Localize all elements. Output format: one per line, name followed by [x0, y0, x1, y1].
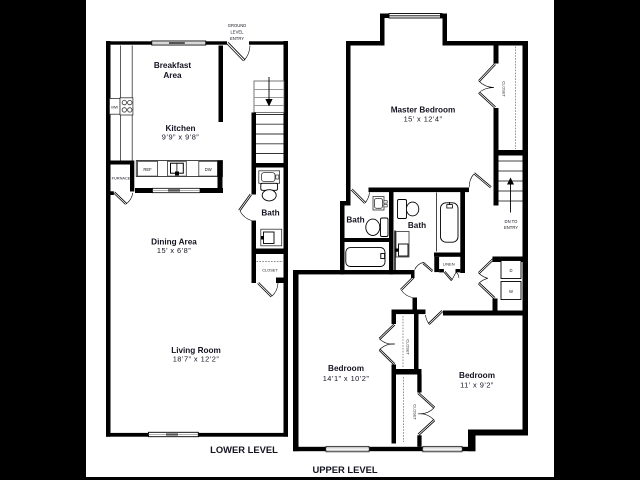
svg-text:15’ x 12’4”: 15’ x 12’4”	[404, 114, 443, 123]
svg-text:D: D	[509, 268, 512, 273]
svg-text:Breakfast: Breakfast	[154, 61, 192, 70]
svg-text:REF: REF	[143, 167, 152, 172]
svg-text:UPPER LEVEL: UPPER LEVEL	[312, 464, 377, 475]
svg-text:LOWER LEVEL: LOWER LEVEL	[210, 444, 278, 455]
svg-text:14’1” x 10’2”: 14’1” x 10’2”	[323, 374, 370, 383]
svg-text:Bath: Bath	[261, 208, 279, 217]
svg-text:18’7” x 12’2”: 18’7” x 12’2”	[173, 355, 220, 364]
svg-text:Bath: Bath	[408, 221, 426, 230]
svg-text:15’ x 6’8”: 15’ x 6’8”	[157, 246, 191, 255]
svg-text:CLOSET: CLOSET	[413, 404, 418, 420]
svg-text:Living Room: Living Room	[171, 346, 221, 355]
svg-text:CLOSET: CLOSET	[262, 267, 278, 272]
svg-text:MW: MW	[111, 105, 118, 109]
svg-text:W: W	[509, 289, 513, 294]
svg-text:Master Bedroom: Master Bedroom	[391, 105, 456, 114]
svg-text:LEVEL: LEVEL	[230, 29, 244, 34]
svg-text:Bedroom: Bedroom	[328, 364, 364, 373]
svg-text:CLOSET: CLOSET	[406, 339, 411, 355]
svg-text:Area: Area	[163, 71, 182, 80]
svg-text:Dining Area: Dining Area	[151, 237, 197, 246]
svg-text:9’9” x 9’8”: 9’9” x 9’8”	[162, 133, 199, 142]
svg-text:Bedroom: Bedroom	[459, 371, 495, 380]
svg-text:DN TO: DN TO	[505, 219, 519, 224]
svg-text:11’ x 9’2”: 11’ x 9’2”	[460, 381, 494, 390]
svg-text:DW: DW	[205, 167, 212, 172]
svg-text:FURNACE: FURNACE	[112, 176, 131, 181]
svg-text:ENTRY: ENTRY	[504, 225, 518, 230]
svg-text:Kitchen: Kitchen	[165, 124, 195, 133]
svg-text:CLOSET: CLOSET	[502, 81, 507, 97]
svg-text:GROUND: GROUND	[228, 23, 247, 28]
svg-text:Bath: Bath	[346, 215, 364, 224]
svg-text:LINEN: LINEN	[443, 262, 455, 267]
svg-text:ENTRY: ENTRY	[230, 36, 244, 41]
